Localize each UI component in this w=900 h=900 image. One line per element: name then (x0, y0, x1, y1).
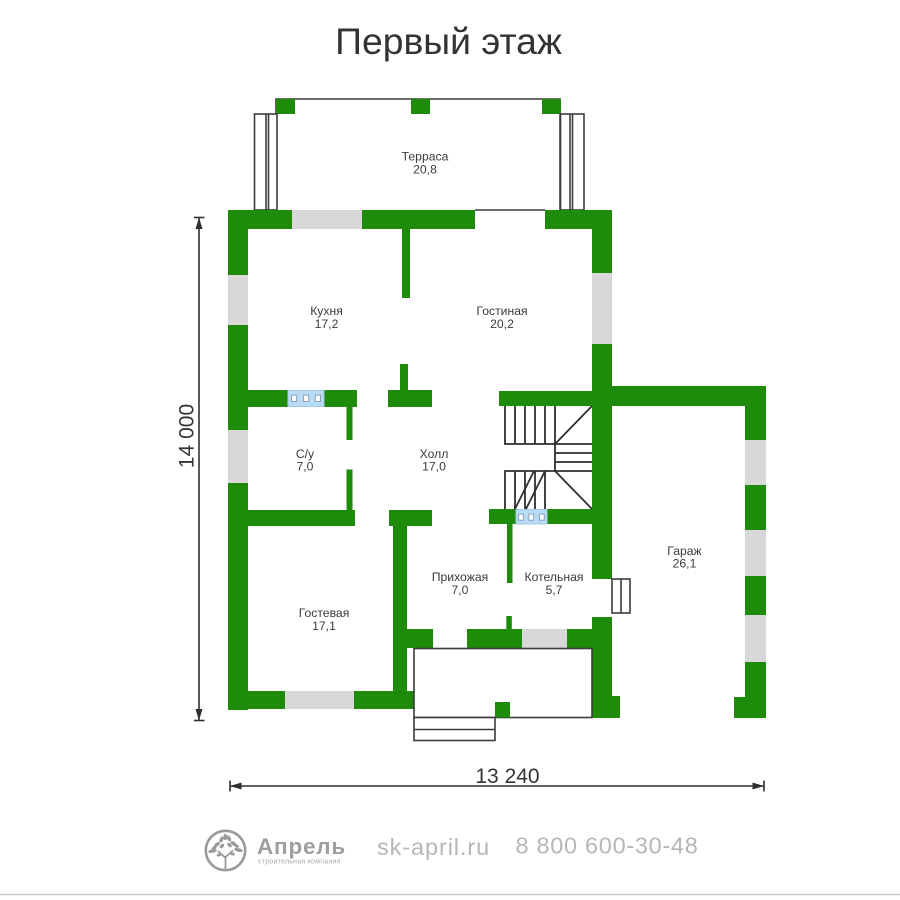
svg-text:Терраса: Терраса (402, 149, 449, 163)
svg-text:17,1: 17,1 (312, 619, 336, 633)
svg-text:Гостевая: Гостевая (299, 606, 350, 620)
svg-text:20,8: 20,8 (413, 162, 437, 176)
svg-text:17,0: 17,0 (422, 460, 446, 474)
svg-text:26,1: 26,1 (673, 557, 697, 571)
svg-text:17,2: 17,2 (315, 317, 339, 331)
svg-text:sk-april.ru: sk-april.ru (377, 834, 490, 860)
svg-text:20,2: 20,2 (490, 317, 514, 331)
svg-text:7,0: 7,0 (297, 460, 314, 474)
svg-text:Гостиная: Гостиная (476, 304, 527, 318)
svg-text:строительная компания: строительная компания (258, 859, 341, 866)
svg-text:8 800 600-30-48: 8 800 600-30-48 (516, 833, 699, 859)
svg-text:Первый этаж: Первый этаж (335, 20, 562, 62)
svg-text:13 240: 13 240 (475, 765, 539, 788)
svg-text:5,7: 5,7 (546, 583, 563, 597)
svg-text:Кухня: Кухня (310, 304, 343, 318)
svg-text:Котельная: Котельная (525, 570, 584, 584)
svg-text:Апрель: Апрель (257, 834, 346, 859)
svg-text:Прихожая: Прихожая (432, 570, 488, 584)
svg-text:7,0: 7,0 (452, 583, 469, 597)
svg-text:14 000: 14 000 (176, 404, 199, 468)
